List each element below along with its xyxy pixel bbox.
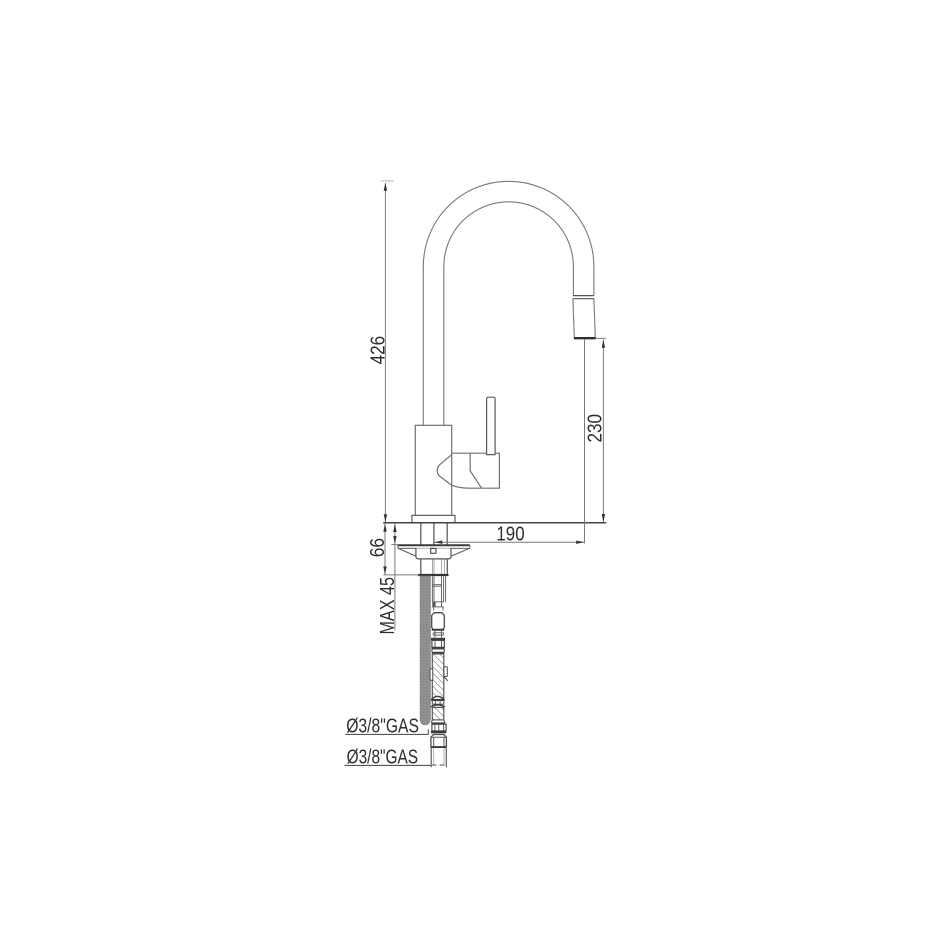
svg-text:190: 190 [496,523,524,545]
svg-text:230: 230 [585,414,607,443]
svg-text:MAX 45: MAX 45 [377,577,399,635]
svg-text:66: 66 [367,538,389,557]
svg-text:426: 426 [367,336,389,365]
